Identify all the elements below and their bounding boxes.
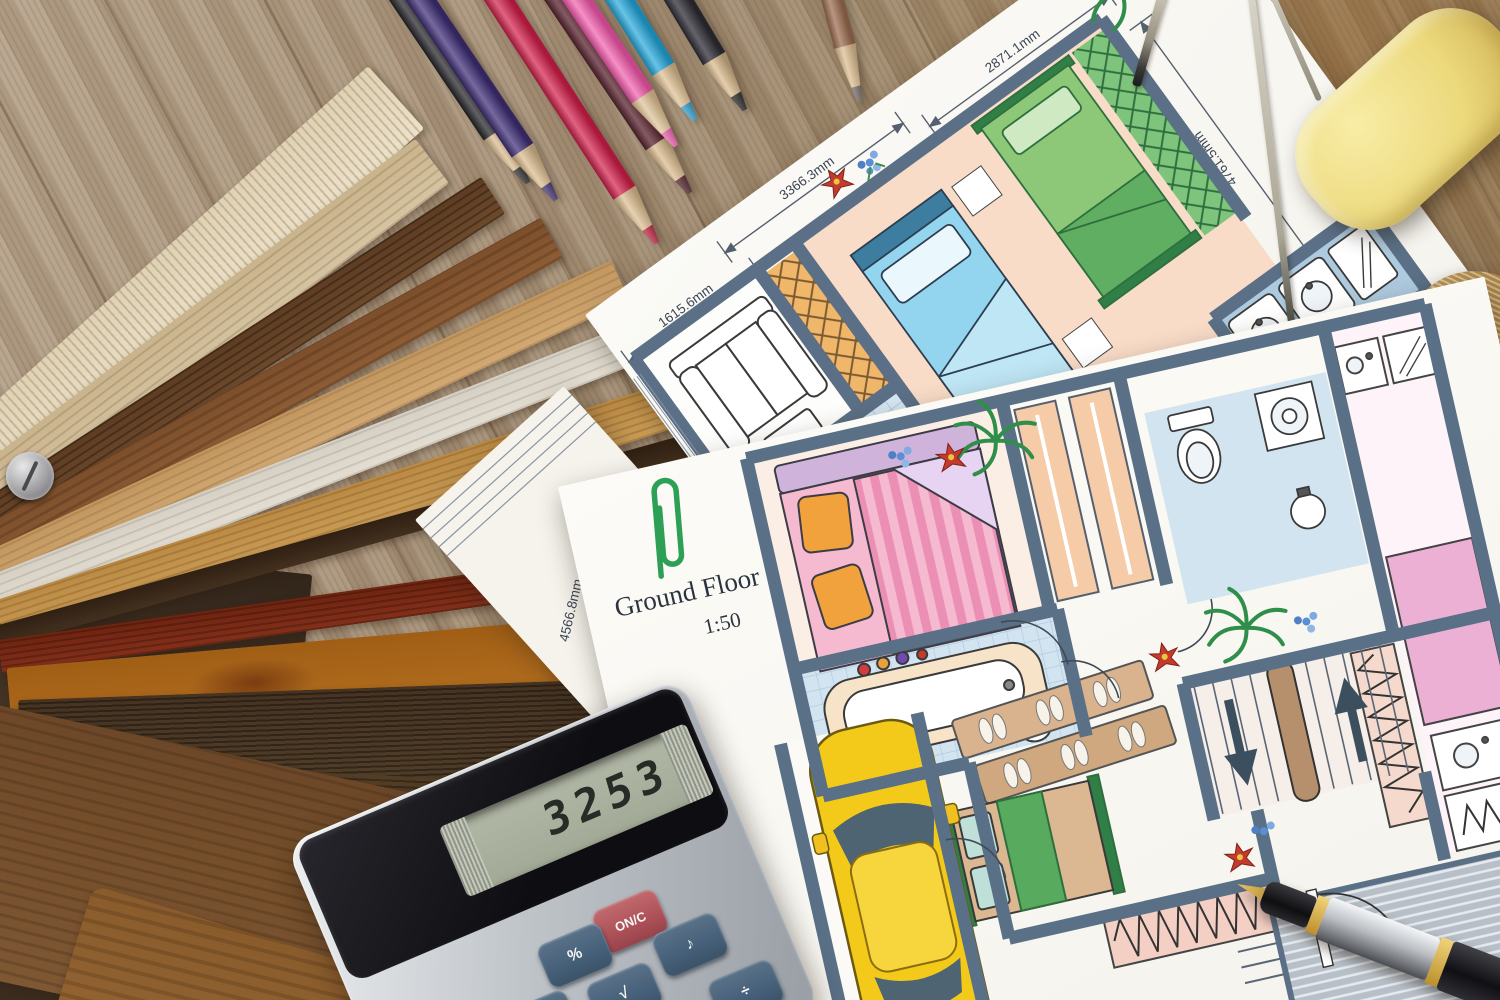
pencil-brown (795, 0, 871, 105)
desk-scene: 4566.8mm (0, 0, 1500, 1000)
calculator-display-value: 3253 (538, 746, 675, 848)
plan-scale: 1:50 (701, 607, 743, 639)
paperclip (653, 480, 683, 577)
screw-head (6, 452, 54, 500)
